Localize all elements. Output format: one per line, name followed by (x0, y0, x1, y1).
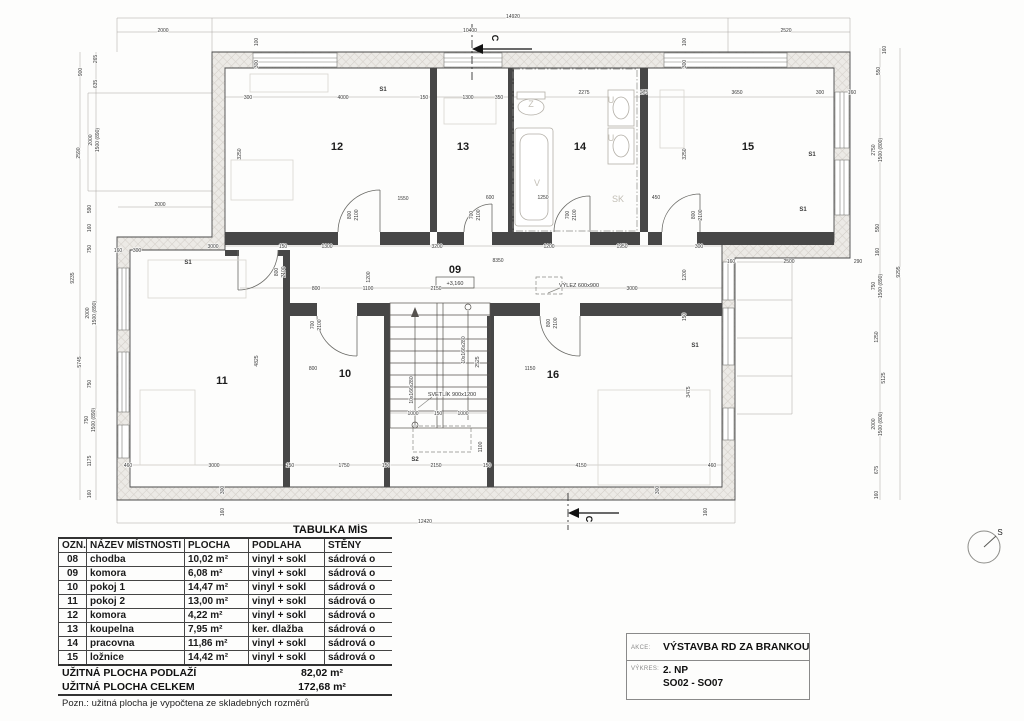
table-row: 11pokoj 213,00 m²vinyl + soklsádrová o (59, 595, 393, 609)
dimension-label: 800 (691, 211, 697, 220)
dimension-label: 900 (78, 68, 84, 77)
table-cell: sádrová o (325, 553, 393, 567)
room-number-label: 11 (216, 375, 228, 387)
room-number-label: 10 (339, 368, 351, 380)
dimension-label: 160 (703, 508, 709, 517)
titleblock-vykres-row: VÝKRES: 2. NP SO02 - SO07 (627, 661, 809, 699)
table-cell: 13,00 m² (185, 595, 249, 609)
dimension-label: 1300 (321, 244, 332, 250)
dimension-label: 1500 (890) (95, 128, 101, 153)
compass: S (968, 528, 1003, 563)
dimension-label: 1100 (363, 286, 374, 292)
room-number-label: 13 (457, 141, 469, 153)
dimension-label: 1150 (525, 366, 536, 372)
room-table-header-cell: PODLAHA (249, 538, 325, 553)
dimension-label: 800 (309, 366, 318, 372)
room-number-label: 15 (742, 141, 754, 153)
dimension-label: 10x166x280 (409, 376, 415, 403)
dimension-label: 160 (875, 248, 881, 257)
dimension-label: 600 (486, 195, 495, 201)
vykres-drawing-number: SO02 - SO07 (663, 677, 723, 690)
dimension-label: 160 (87, 490, 93, 499)
dimension-label: 2100 (281, 266, 287, 277)
dimension-label: 300 (816, 90, 825, 96)
table-row: 13koupelna7,95 m²ker. dlažbasádrová o (59, 623, 393, 637)
dimension-label: 12420 (418, 519, 432, 525)
dimension-label: 160 (882, 46, 888, 55)
dimension-label: 3000 (207, 244, 218, 250)
room-number-label: 14 (574, 141, 587, 153)
dimension-label: 10400 (463, 28, 477, 34)
dimension-label: 635 (93, 80, 99, 89)
vykres-drawing-name: 2. NP (663, 664, 723, 677)
dimension-label: 2000 (157, 28, 168, 34)
dimension-label: 1000 (407, 411, 418, 417)
dimension-label: 290 (854, 259, 863, 265)
dimension-label: 1300 (462, 95, 473, 101)
dimension-label: 1000 (457, 411, 468, 417)
dimension-label: 265 (93, 55, 99, 64)
table-cell: 6,08 m² (185, 567, 249, 581)
room-table-note: Pozn.: užitná plocha je vypočtena ze skl… (58, 698, 392, 709)
dimension-label: 10x166x280 (461, 336, 467, 363)
dimension-label: 675 (874, 466, 880, 475)
table-cell: pokoj 2 (87, 595, 185, 609)
room-number-label: 16 (547, 369, 559, 381)
dimension-label: 3475 (686, 386, 692, 397)
dimension-label: 300 (254, 60, 260, 69)
dimension-label: 150 (279, 244, 288, 250)
dimension-label: 1550 (397, 196, 408, 202)
dimension-label: 590 (87, 205, 93, 214)
dimension-label: 800 (347, 211, 353, 220)
room-table-header-cell: STĚNY (325, 538, 393, 553)
dimension-label: 300 (695, 244, 704, 250)
section-label: C (584, 516, 594, 523)
fixture-label: SK (612, 194, 624, 204)
room-table-header-cell: NÁZEV MÍSTNOSTI (87, 538, 185, 553)
dimension-label: 150 (382, 463, 391, 469)
annotation-label: +3,160 (447, 281, 464, 287)
dimension-label: 1500 (890) (878, 274, 884, 299)
dimension-label: 2100 (317, 319, 323, 330)
table-cell: ložnice (87, 651, 185, 666)
table-cell: 08 (59, 553, 87, 567)
dimension-label: 9235 (70, 272, 76, 283)
dimension-label: 3650 (731, 90, 742, 96)
dimension-label: 5125 (881, 372, 887, 383)
washbasin-bowl (613, 135, 629, 157)
bath-fixtures (515, 90, 634, 226)
dimension-label: 2150 (430, 286, 441, 292)
dimension-label: 1200 (366, 271, 372, 282)
table-cell: vinyl + sokl (249, 553, 325, 567)
table-cell: 4,22 m² (185, 609, 249, 623)
room-table-header-row: OZN.NÁZEV MÍSTNOSTIPLOCHAPODLAHASTĚNY (59, 538, 393, 553)
dimension-label: 4150 (575, 463, 586, 469)
room-number-labels: 1213141511101609 (216, 141, 754, 387)
table-cell: vinyl + sokl (249, 567, 325, 581)
dimension-label: 550 (875, 224, 881, 233)
table-cell: vinyl + sokl (249, 581, 325, 595)
dimension-label: 2100 (572, 209, 578, 220)
summary-row: UŽITNÁ PLOCHA PODLAŽÍ82,02 m² (58, 666, 392, 680)
zone-label: S1 (799, 207, 807, 213)
dimension-label: 2525 (475, 356, 481, 367)
dimension-label: 1175 (87, 455, 93, 466)
dimension-label: 750 (87, 380, 93, 389)
table-cell: vinyl + sokl (249, 595, 325, 609)
section-arrow-icon (568, 508, 579, 518)
dimension-label: 1750 (338, 463, 349, 469)
table-cell: vinyl + sokl (249, 651, 325, 666)
zone-label: S1 (808, 152, 816, 158)
table-cell: sádrová o (325, 609, 393, 623)
room-table-body: 08chodba10,02 m²vinyl + soklsádrová o09k… (59, 553, 393, 666)
dimension-label: 2275 (578, 90, 589, 96)
table-cell: 15 (59, 651, 87, 666)
dimension-label: 460 (124, 463, 133, 469)
dimension-label: 2750 (871, 144, 877, 155)
dimension-label: 2590 (76, 147, 82, 158)
dimension-label: 750 (871, 282, 877, 291)
titleblock-akce-row: AKCE: VÝSTAVBA RD ZA BRANKOU (627, 634, 809, 661)
dimension-label: 160 (848, 90, 857, 96)
dimension-label: 100 (682, 38, 688, 47)
dimension-label: 4000 (337, 95, 348, 101)
fixture-label: U (608, 133, 615, 143)
akce-value: VÝSTAVBA RD ZA BRANKOU (663, 641, 809, 653)
table-cell: 10,02 m² (185, 553, 249, 567)
room-number-label: 09 (449, 264, 461, 276)
room-table-grid: OZN.NÁZEV MÍSTNOSTIPLOCHAPODLAHASTĚNY 08… (58, 537, 392, 666)
dimension-label: 1250 (874, 331, 880, 342)
table-cell: 12 (59, 609, 87, 623)
table-cell: 09 (59, 567, 87, 581)
dimension-label: 150 (286, 463, 295, 469)
dimension-label: 1500 (800) (878, 138, 884, 163)
table-row: 10pokoj 114,47 m²vinyl + soklsádrová o (59, 581, 393, 595)
table-row: 09komora6,08 m²vinyl + soklsádrová o (59, 567, 393, 581)
dimension-label: 2100 (553, 317, 559, 328)
dimension-label: 750 (84, 416, 90, 425)
table-cell: sádrová o (325, 595, 393, 609)
table-cell: chodba (87, 553, 185, 567)
room-table-summary: UŽITNÁ PLOCHA PODLAŽÍ82,02 m²UŽITNÁ PLOC… (58, 666, 392, 696)
summary-value: 172,68 m² (267, 680, 377, 694)
dimension-label: 100 (254, 38, 260, 47)
dimension-label: 160 (220, 508, 226, 517)
compass-north-label: S (997, 528, 1002, 537)
table-cell: komora (87, 609, 185, 623)
dimension-label: 700 (310, 321, 316, 330)
table-cell: pracovna (87, 637, 185, 651)
dimension-label: 800 (312, 286, 321, 292)
dimension-label: 750 (87, 245, 93, 254)
dimension-label: 300 (244, 95, 253, 101)
dimension-label: 2100 (476, 209, 482, 220)
table-cell: 10 (59, 581, 87, 595)
summary-value: 82,02 m² (267, 666, 377, 680)
table-cell: sádrová o (325, 581, 393, 595)
table-cell: 13 (59, 623, 87, 637)
annotation-label: SVĚTLÍK 900x1200 (428, 390, 476, 398)
dimension-label: 800 (274, 268, 280, 277)
table-cell: 14,47 m² (185, 581, 249, 595)
room-table-header-cell: OZN. (59, 538, 87, 553)
dimension-label: 1100 (478, 441, 484, 452)
table-row: 08chodba10,02 m²vinyl + soklsádrová o (59, 553, 393, 567)
table-cell: pokoj 1 (87, 581, 185, 595)
washbasin-bowl (613, 97, 629, 119)
dimension-label: 160 (874, 491, 880, 500)
dimension-label: 3000 (626, 286, 637, 292)
zone-label: S1 (379, 87, 387, 93)
toilet-tank (517, 92, 545, 99)
dimension-label: 700 (565, 211, 571, 220)
table-cell: 14 (59, 637, 87, 651)
table-cell: vinyl + sokl (249, 637, 325, 651)
summary-row: UŽITNÁ PLOCHA CELKEM172,68 m² (58, 680, 392, 696)
table-cell: komora (87, 567, 185, 581)
dimension-label: 800 (546, 319, 552, 328)
dimension-label: 2100 (354, 209, 360, 220)
table-cell: sádrová o (325, 637, 393, 651)
table-row: 14pracovna11,86 m²vinyl + soklsádrová o (59, 637, 393, 651)
dimension-label: 14920 (506, 14, 520, 20)
fixture-label: Z (528, 99, 534, 109)
summary-label: UŽITNÁ PLOCHA PODLAŽÍ (58, 666, 267, 680)
dimension-label: 3250 (682, 148, 688, 159)
table-row: 15ložnice14,42 m²vinyl + soklsádrová o (59, 651, 393, 666)
dimension-label: 2520 (780, 28, 791, 34)
dimension-label: 1500 (890) (91, 408, 97, 433)
dimension-label: 300 (682, 60, 688, 69)
table-cell: vinyl + sokl (249, 609, 325, 623)
dimension-label: 150 (483, 463, 492, 469)
titleblock: AKCE: VÝSTAVBA RD ZA BRANKOU VÝKRES: 2. … (626, 633, 810, 700)
table-cell: sádrová o (325, 623, 393, 637)
table-cell: ker. dlažba (249, 623, 325, 637)
room-table-header-cell: PLOCHA (185, 538, 249, 553)
table-cell: koupelna (87, 623, 185, 637)
dimension-label: 160 (114, 248, 123, 254)
dimension-label: 2000 (85, 307, 91, 318)
dimension-label: 1200 (682, 269, 688, 280)
zone-label: S2 (411, 457, 419, 463)
room-table-title: TABULKA MÍS (58, 524, 392, 537)
annotation-labels: SVĚTLÍK 900x1200VÝLEZ 600x900+3,160 (428, 281, 599, 398)
dimension-label: 9295 (896, 266, 902, 277)
table-cell: 14,42 m² (185, 651, 249, 666)
dimension-label: 300 (220, 486, 226, 495)
dimension-label: 5745 (77, 356, 83, 367)
dimension-label: 8350 (492, 258, 503, 264)
annotation-label: VÝLEZ 600x900 (559, 282, 599, 289)
dimension-label: 300 (655, 486, 661, 495)
dimension-label: 1500 (800) (878, 412, 884, 437)
summary-label: UŽITNÁ PLOCHA CELKEM (58, 680, 267, 694)
table-cell: 11 (59, 595, 87, 609)
dimension-label: 3250 (237, 148, 243, 159)
dimension-label: 1500 (890) (92, 301, 98, 326)
dimension-label: 1200 (543, 244, 554, 250)
table-cell: 11,86 m² (185, 637, 249, 651)
dimension-label: 450 (652, 195, 661, 201)
zone-label: S1 (184, 260, 192, 266)
dimension-label: 2000 (154, 202, 165, 208)
dimension-label: 1250 (537, 195, 548, 201)
dimension-label: 550 (876, 67, 882, 76)
dimension-label: 2100 (698, 209, 704, 220)
dimension-label: 350 (495, 95, 504, 101)
dimension-label: 150 (420, 95, 429, 101)
dimension-label: 2500 (783, 259, 794, 265)
room-number-label: 12 (331, 141, 343, 153)
vykres-label: VÝKRES: (631, 664, 663, 672)
dimension-label: 2150 (430, 463, 441, 469)
dimension-label: 1950 (616, 244, 627, 250)
dimension-label: 160 (87, 224, 93, 233)
dimension-label: 2000 (871, 418, 877, 429)
fixture-label: U (608, 95, 615, 105)
table-cell: sádrová o (325, 651, 393, 666)
dimension-label: 460 (708, 463, 717, 469)
fixture-label: V (534, 178, 540, 188)
room-table: TABULKA MÍS OZN.NÁZEV MÍSTNOSTIPLOCHAPOD… (58, 524, 392, 709)
compass-needle-icon (984, 536, 996, 547)
dimension-label: 4825 (254, 355, 260, 366)
dimension-label: 150 (434, 411, 443, 417)
dimension-label: 275 (640, 90, 649, 96)
bathtub-inner (520, 134, 548, 220)
dimension-label: 300 (133, 248, 142, 254)
dimension-label: 2000 (88, 134, 94, 145)
table-cell: sádrová o (325, 567, 393, 581)
dimension-label: 150 (682, 313, 688, 322)
dimension-label: 3000 (208, 463, 219, 469)
outer-walls (117, 52, 850, 500)
dimension-label: 3200 (431, 244, 442, 250)
table-cell: 7,95 m² (185, 623, 249, 637)
table-row: 12komora4,22 m²vinyl + soklsádrová o (59, 609, 393, 623)
section-label: C (490, 35, 500, 42)
akce-label: AKCE: (631, 643, 663, 651)
dimension-label: 700 (469, 211, 475, 220)
zone-label: S1 (691, 343, 699, 349)
dimension-label: 160 (727, 259, 736, 265)
